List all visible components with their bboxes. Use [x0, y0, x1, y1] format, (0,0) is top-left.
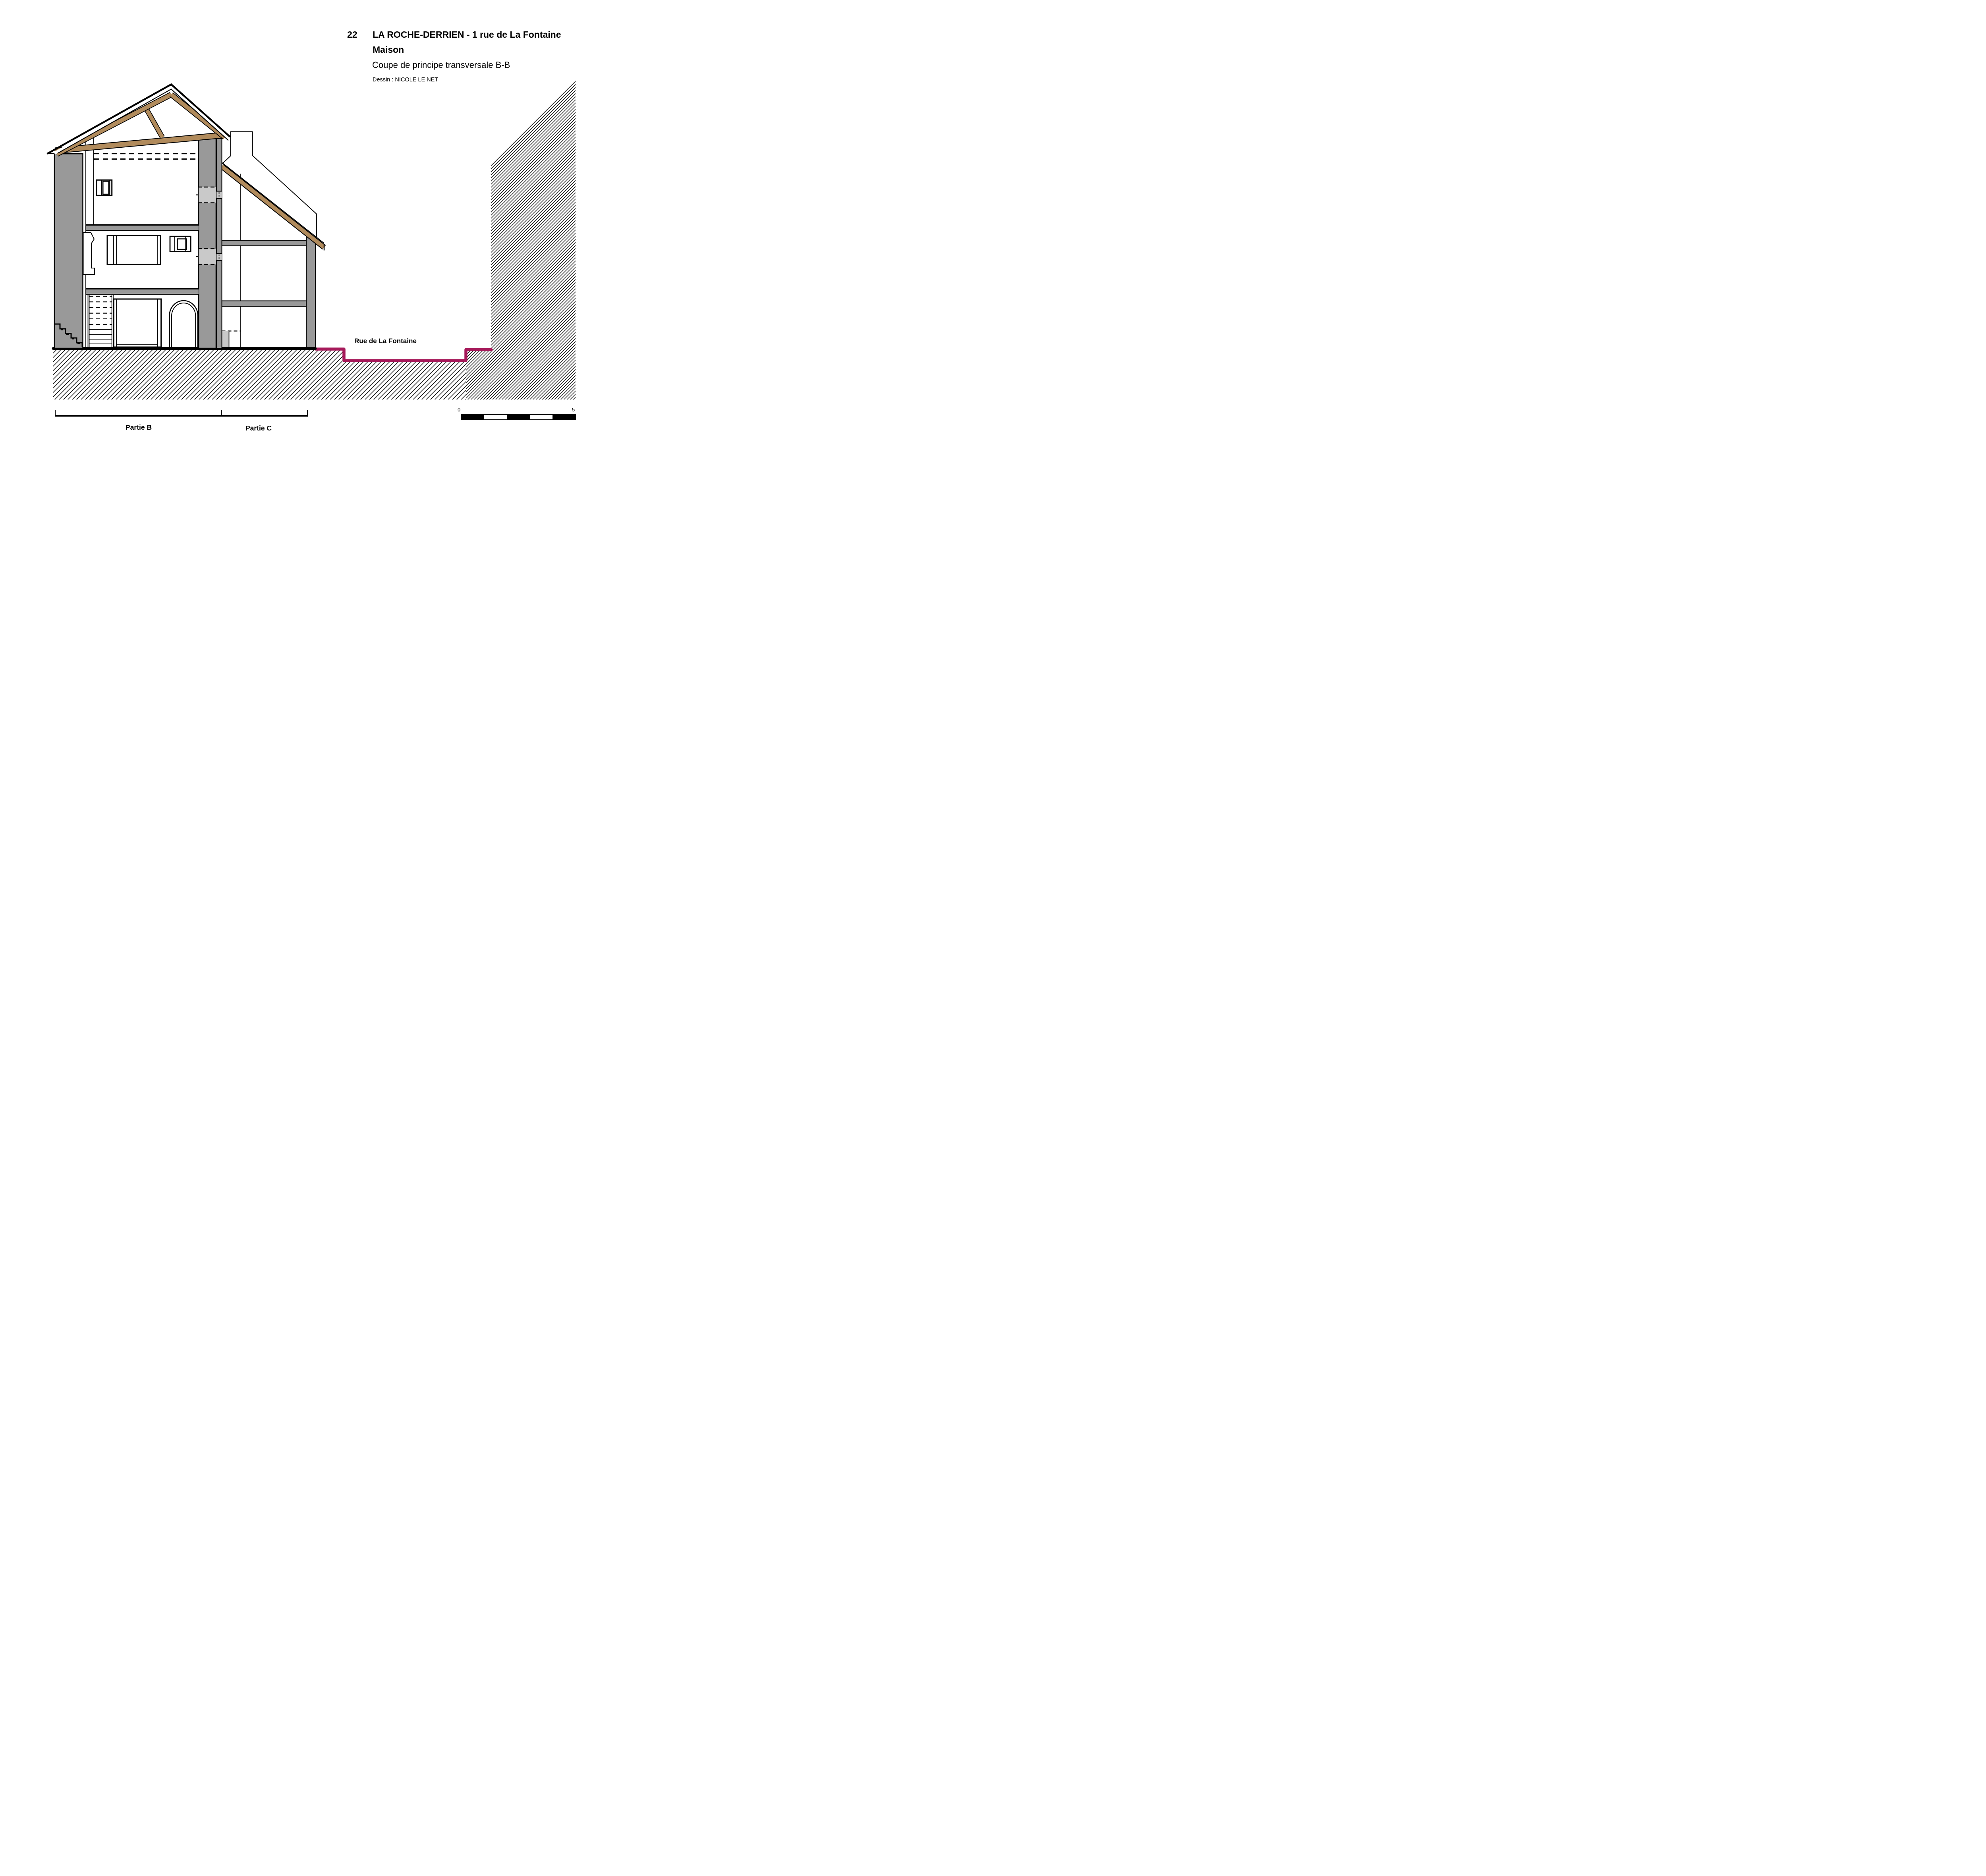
left-wall: [54, 154, 83, 348]
part-b-label: Partie B: [126, 423, 152, 432]
part-c-label: Partie C: [245, 424, 272, 432]
beam-pocket-lower: [196, 249, 217, 264]
sheet-title: LA ROCHE-DERRIEN - 1 rue de La Fontaine: [373, 29, 561, 40]
scale-bar-segment: [530, 415, 553, 419]
scale-bar: [461, 414, 576, 420]
strut: [146, 108, 163, 137]
pocket-notch-lower: [216, 253, 222, 261]
partie-b: [47, 136, 222, 348]
attic-floor-band: [86, 225, 199, 230]
arched-door: [170, 301, 198, 347]
partie-c-left-wall: [216, 139, 222, 348]
window-embrasure: [83, 232, 95, 274]
partie-c-right-wall: [306, 236, 315, 348]
partie-c: [222, 132, 325, 348]
staircase: [88, 295, 114, 348]
stair-treads: [89, 330, 112, 344]
neighbor-wall-hatch: [466, 80, 576, 400]
right-principal-rafter: [171, 95, 225, 137]
part-extent-bracket: [55, 410, 308, 416]
attic-floor-dashed: [94, 154, 199, 159]
etage-window-large: [107, 235, 160, 264]
scale-bar-segment: [462, 415, 484, 419]
drawing-type: Coupe de principe transversale B-B: [372, 60, 510, 70]
scale-bar-segment: [507, 415, 529, 419]
ground-hatch: [53, 350, 466, 400]
scale-start-label: 0: [458, 407, 460, 413]
sheet-number: 22: [347, 29, 357, 40]
central-wall: [199, 138, 216, 348]
beam-pocket-upper: [196, 187, 217, 203]
partie-c-below-street-wall: [222, 331, 229, 348]
etage-window-small: [170, 236, 191, 251]
drawing-sheet: 22 LA ROCHE-DERRIEN - 1 rue de La Fontai…: [0, 0, 623, 461]
scale-bar-segment: [484, 415, 507, 419]
etage-floor-band: [86, 289, 199, 294]
hidden-stair-flight: [89, 296, 112, 324]
ground-floor-opening: [114, 299, 161, 347]
scale-bar-segment: [553, 415, 575, 419]
pocket-notch-upper: [216, 191, 222, 199]
sheet-subtitle: Maison: [373, 44, 404, 55]
street-label: Rue de La Fontaine: [354, 337, 417, 345]
drawing-credit: Dessin : NICOLE LE NET: [373, 77, 438, 83]
scale-end-label: 5: [572, 407, 575, 413]
partie-c-upper-floor-band: [222, 240, 307, 246]
attic-window: [97, 180, 112, 195]
section-drawing: [0, 0, 623, 461]
partie-c-lower-floor-band: [222, 301, 307, 307]
